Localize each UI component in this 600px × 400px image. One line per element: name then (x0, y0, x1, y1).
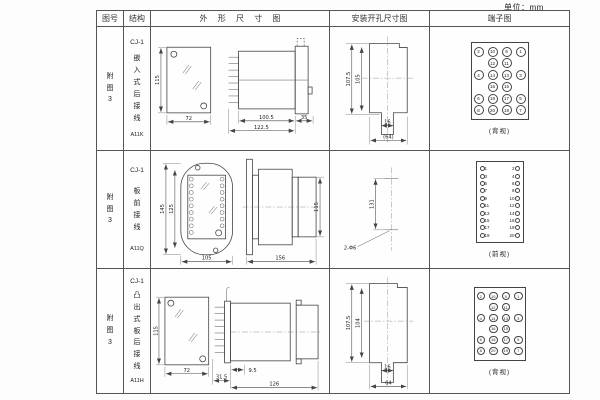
terminal-row: 34 (480, 174, 520, 179)
terminal-number: 11 (485, 203, 490, 208)
terminal-circle: 18 (489, 336, 498, 345)
model-label: A11K (130, 132, 143, 138)
row1-fig-no-cell: 附图3 (97, 27, 124, 151)
terminal-hole (515, 166, 520, 171)
side-view: 115 156 (242, 159, 324, 264)
terminal-number: 7 (485, 188, 488, 193)
dim-label: 9.5 (248, 367, 256, 373)
terminal-row: 1314 (480, 211, 520, 216)
row3-terminal-cell: 2109112114141331615618175820197 (背视) (430, 269, 570, 394)
dim-label: 35 (301, 114, 308, 120)
terminal-number: 19 (485, 233, 490, 238)
terminal-circle: 6 (474, 94, 484, 104)
terminal-circle: 16 (488, 82, 498, 92)
terminal-circle: 2 (474, 47, 484, 57)
row1-outline-drawing: 115 72 (151, 27, 329, 151)
terminal-circle: 10 (489, 292, 498, 301)
terminal-circle: 14 (488, 70, 498, 80)
terminal-number: 3 (485, 174, 488, 179)
dim-label: 115 (155, 75, 161, 85)
terminal-hole (515, 211, 520, 216)
terminal-circle: 15 (502, 325, 511, 334)
structure-label: 凸出式板后接线 (133, 290, 140, 373)
row2-outline-drawing: 145 125 105 (151, 151, 329, 269)
header-outline: 外 形 尺 寸 图 (151, 11, 330, 27)
dim-label: 64 (385, 380, 392, 386)
row1-mounting-cell: 107.5 105 16 (64) (330, 27, 430, 151)
terminal-circle: 11 (502, 303, 511, 312)
row2-terminal-cell: 1234567891011121314151617181920 (前视) (430, 151, 570, 269)
structure-label: 嵌入式后接线 (133, 53, 140, 124)
terminal-row: 1718 (480, 225, 520, 230)
terminal-row: 21091 (474, 47, 526, 57)
terminal-number: 9 (485, 196, 488, 201)
terminal-blank (514, 303, 523, 312)
model-label: A11H (130, 378, 143, 384)
terminal-hole (515, 174, 520, 179)
terminal-circle: 9 (502, 292, 511, 301)
terminal-blank (514, 325, 523, 334)
terminal-circle: 3 (514, 314, 523, 323)
terminal-circle: 13 (502, 314, 511, 323)
terminal-circle: 5 (514, 336, 523, 345)
terminal-circle: 20 (488, 105, 498, 115)
terminal-number: 17 (485, 225, 490, 230)
model-label: A11Q (130, 246, 144, 252)
row2-outline-cell: 145 125 105 (151, 151, 330, 269)
row1-outline-cell: 115 72 (151, 27, 330, 151)
row2-mounting-drawing: 131 2-Φ6 (330, 151, 429, 269)
terminal-number: 20 (509, 233, 514, 238)
header-fig-no: 图号 (97, 11, 124, 27)
dim-label: 125 (169, 204, 175, 214)
terminal-number: 13 (485, 211, 490, 216)
row3-mounting-drawing: 107.5 104 16 64 (330, 269, 429, 394)
terminal-blank (516, 82, 526, 92)
fig-no: 附图3 (106, 71, 113, 107)
terminal-caption: (背视) (489, 366, 510, 376)
row2-structure-cell: CJ-1 板前接线 A11Q (124, 151, 151, 269)
terminal-circle: 4 (474, 70, 484, 80)
dim-label: 131 (370, 199, 376, 209)
terminal-diagram-back: 2109112114141331615618175820197 (474, 287, 526, 361)
terminal-row: 1516 (480, 218, 520, 223)
terminal-circle: 20 (489, 347, 498, 356)
row3-fig-no-cell: 附图3 (97, 269, 124, 394)
terminal-number: 18 (509, 225, 514, 230)
terminal-circle: 18 (488, 94, 498, 104)
terminal-hole (515, 203, 520, 208)
terminal-blank (474, 82, 484, 92)
terminal-caption: (背视) (489, 125, 510, 135)
terminal-circle: 9 (502, 47, 512, 57)
dim-label: 156 (275, 255, 285, 261)
terminal-row: 820197 (474, 105, 526, 115)
hole-callout: 2-Φ6 (344, 245, 356, 251)
dim-label: 72 (186, 115, 193, 121)
terminal-hole (515, 233, 520, 238)
terminal-row: 414133 (474, 70, 526, 80)
terminal-circle: 8 (477, 347, 486, 356)
dim-label: 105 (356, 74, 362, 84)
terminal-row: 1112 (480, 203, 520, 208)
terminal-hole (515, 225, 520, 230)
terminal-number: 15 (485, 218, 490, 223)
row1-mounting-drawing: 107.5 105 16 (64) (330, 27, 429, 151)
terminal-row: 1920 (480, 233, 520, 238)
side-view: 9.5 31.5 126 (213, 287, 320, 390)
dim-label: 115 (153, 326, 159, 336)
series-label: CJ-1 (130, 39, 144, 46)
row3-structure-cell: CJ-1 凸出式板后接线 A11H (124, 269, 151, 394)
dim-label: 104 (356, 318, 362, 328)
terminal-blank (516, 58, 526, 68)
terminal-number: 16 (509, 218, 514, 223)
terminal-diagram-front: 1234567891011121314151617181920 (476, 161, 524, 243)
terminal-row: 1615 (474, 82, 526, 92)
front-view: 115 72 (153, 297, 208, 377)
terminal-circle: 2 (477, 292, 486, 301)
terminal-circle: 1 (516, 47, 526, 57)
row3-outline-drawing: 115 72 (151, 269, 329, 394)
dim-label: 126 (269, 381, 279, 387)
structure-label: 板前接线 (133, 186, 140, 234)
terminal-number: 12 (509, 203, 514, 208)
terminal-hole (515, 181, 520, 186)
terminal-blank (477, 325, 486, 334)
terminal-circle: 19 (502, 105, 512, 115)
terminal-circle: 12 (489, 303, 498, 312)
header-structure: 结构 (124, 11, 151, 27)
fig-no: 附图3 (106, 192, 113, 228)
dim-label: 16 (384, 119, 391, 125)
terminal-row: 1615 (477, 325, 523, 334)
front-view: 145 125 105 (160, 163, 233, 264)
terminal-row: 1211 (474, 58, 526, 68)
fig-no: 附图3 (106, 313, 113, 349)
header-mounting: 安装开孔尺寸图 (330, 11, 430, 27)
front-view: 115 72 (155, 47, 211, 125)
terminal-circle: 13 (502, 70, 512, 80)
row1-structure-cell: CJ-1 嵌入式后接线 A11K (124, 27, 151, 151)
terminal-circle: 7 (514, 347, 523, 356)
drawing-sheet: 单位：mm 图号 结构 外 形 尺 寸 图 安装开孔尺寸图 端子图 附图3 CJ… (0, 0, 600, 400)
terminal-circle: 16 (489, 325, 498, 334)
terminal-number: 1 (485, 166, 488, 171)
terminal-hole (515, 196, 520, 201)
dim-label: 31.5 (216, 374, 227, 380)
terminal-row: 414133 (477, 314, 523, 323)
row2-fig-no-cell: 附图3 (97, 151, 124, 269)
terminal-caption: (前视) (489, 248, 510, 258)
terminal-blank (474, 58, 484, 68)
terminal-diagram-back: 2109112114141331615618175820197 (471, 42, 529, 120)
terminal-row: 618175 (474, 94, 526, 104)
terminal-circle: 17 (502, 94, 512, 104)
series-label: CJ-1 (130, 278, 144, 285)
terminal-hole (515, 188, 520, 193)
terminal-row: 820197 (477, 347, 523, 356)
terminal-circle: 15 (502, 82, 512, 92)
dim-label: 145 (160, 204, 166, 214)
terminal-row: 78 (480, 188, 520, 193)
terminal-row: 618175 (477, 336, 523, 345)
terminal-row: 1211 (477, 303, 523, 312)
dim-label: 16 (384, 364, 391, 370)
terminal-circle: 4 (477, 314, 486, 323)
terminal-circle: 5 (516, 94, 526, 104)
terminal-blank (477, 303, 486, 312)
terminal-circle: 10 (488, 47, 498, 57)
terminal-hole (515, 218, 520, 223)
dim-label: 107.5 (346, 315, 352, 330)
series-label: CJ-1 (130, 167, 144, 174)
terminal-row: 910 (480, 196, 520, 201)
dim-label: 107.5 (346, 71, 352, 86)
terminal-circle: 19 (502, 347, 511, 356)
terminal-row: 56 (480, 181, 520, 186)
row3-outline-cell: 115 72 (151, 269, 330, 394)
dim-label: 100.5 (259, 114, 274, 120)
terminal-circle: 12 (488, 58, 498, 68)
terminal-number: 10 (509, 196, 514, 201)
terminal-circle: 7 (516, 105, 526, 115)
side-view: 100.5 122.5 35 (229, 38, 314, 133)
terminal-row: 12 (480, 166, 520, 171)
row1-terminal-cell: 2109112114141331615618175820197 (背视) (430, 27, 570, 151)
header-terminal: 端子图 (430, 11, 570, 27)
dim-label: 105 (202, 255, 212, 261)
terminal-circle: 3 (516, 70, 526, 80)
dimension-table: 图号 结构 外 形 尺 寸 图 安装开孔尺寸图 端子图 附图3 CJ-1 嵌入式… (96, 10, 570, 394)
terminal-circle: 17 (502, 336, 511, 345)
dim-label: 122.5 (254, 124, 269, 130)
row3-mounting-cell: 107.5 104 16 64 (330, 269, 430, 394)
terminal-circle: 1 (514, 292, 523, 301)
terminal-number: 5 (485, 181, 488, 186)
row2-mounting-cell: 131 2-Φ6 (330, 151, 430, 269)
dim-label: 115 (314, 202, 320, 212)
terminal-circle: 14 (489, 314, 498, 323)
dim-label: 72 (184, 367, 191, 373)
terminal-row: 21091 (477, 292, 523, 301)
terminal-number: 14 (509, 211, 514, 216)
terminal-circle: 8 (474, 105, 484, 115)
dim-label: (64) (383, 134, 394, 140)
terminal-circle: 11 (502, 58, 512, 68)
terminal-circle: 6 (477, 336, 486, 345)
